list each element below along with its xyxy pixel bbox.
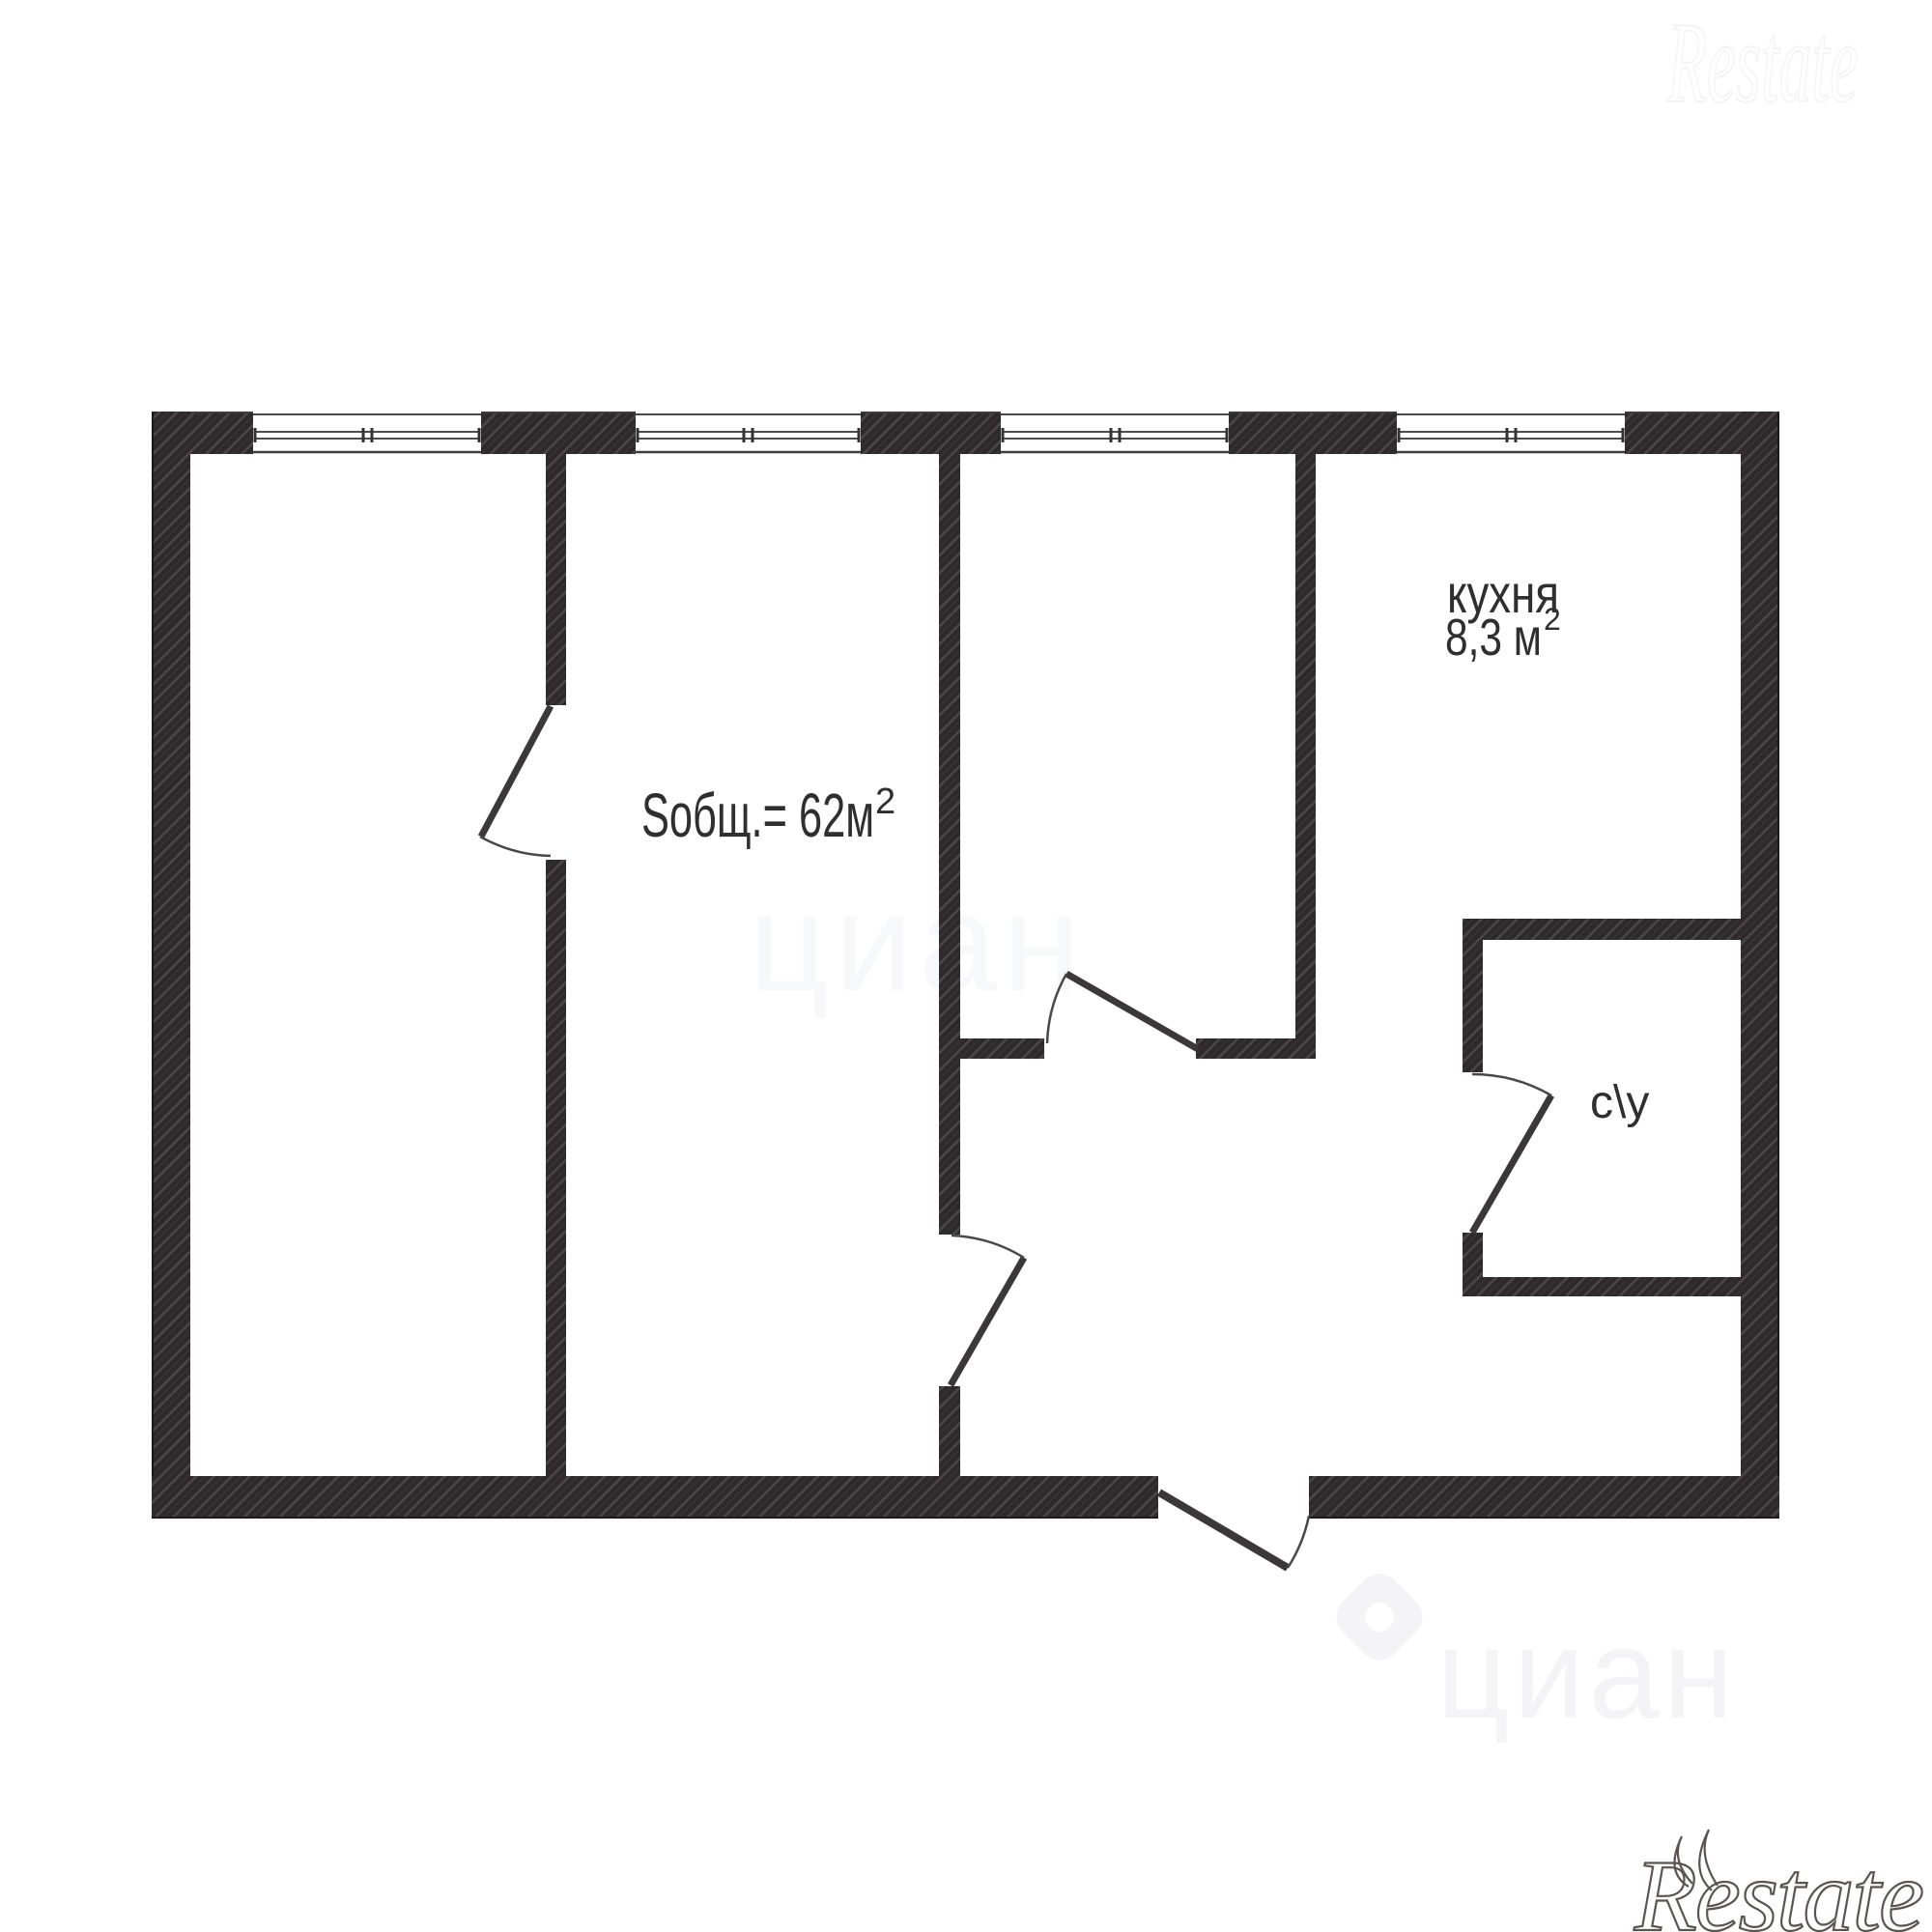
svg-text:2: 2 (1544, 602, 1561, 637)
svg-text:Sобщ.= 62м: Sобщ.= 62м (641, 781, 874, 850)
svg-text:2: 2 (875, 781, 895, 822)
svg-text:8,3 м: 8,3 м (1445, 609, 1542, 667)
svg-text:c\у: c\у (1590, 1077, 1649, 1128)
svg-text:циан: циан (749, 864, 1086, 1020)
svg-text:Restate: Restate (1666, 0, 1858, 128)
svg-text:циан: циан (1436, 1603, 1738, 1745)
